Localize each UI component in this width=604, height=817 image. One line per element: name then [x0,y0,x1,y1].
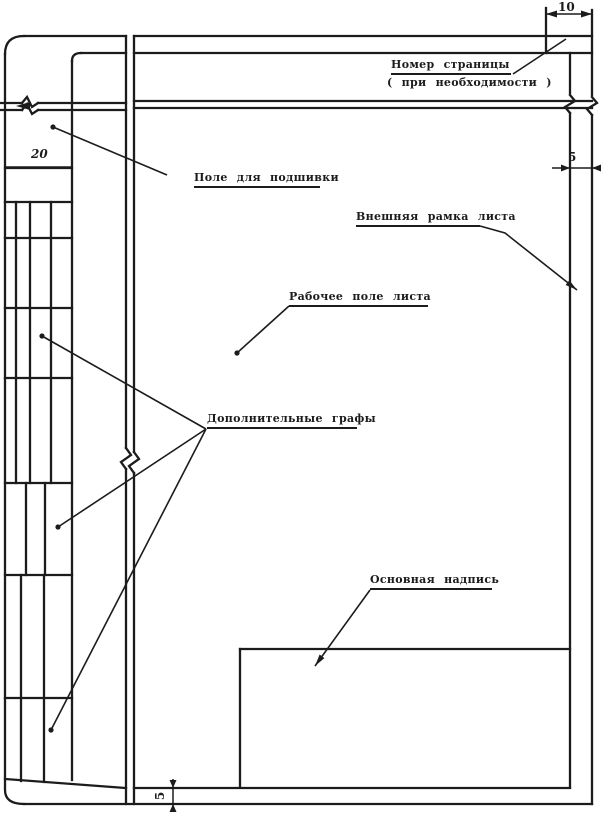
page-number-label-line2: ( при необходимости ) [387,76,552,90]
diagram-linework [0,0,604,817]
title-block-label: Основная надпись [370,573,492,590]
paper-edge [5,10,597,804]
dimension-right-5: 5 [568,150,576,164]
sheet-format-diagram: Номер страницы ( при необходимости ) Пол… [0,0,604,817]
page-number-label-line1: Номер страницы [391,58,511,75]
dimension-top-10: 10 [558,0,575,14]
horizontal-break-lines [0,97,592,114]
outer-frame-label: Внешняя рамка листа [356,210,480,227]
filing-field-label: Поле для подшивки [194,171,320,188]
vertical-break-lines [121,36,139,804]
extra-columns-table [5,168,72,782]
page-number-label: Номер страницы ( при необходимости ) [391,58,552,90]
dimension-left-20: 20 [31,147,48,161]
leader-lines [42,39,577,730]
dimension-bottom-5: 5 [153,792,167,800]
title-block-outline [240,649,570,787]
working-field-label: Рабочее поле листа [289,290,428,307]
extra-columns-label: Дополнительные графы [207,412,357,429]
